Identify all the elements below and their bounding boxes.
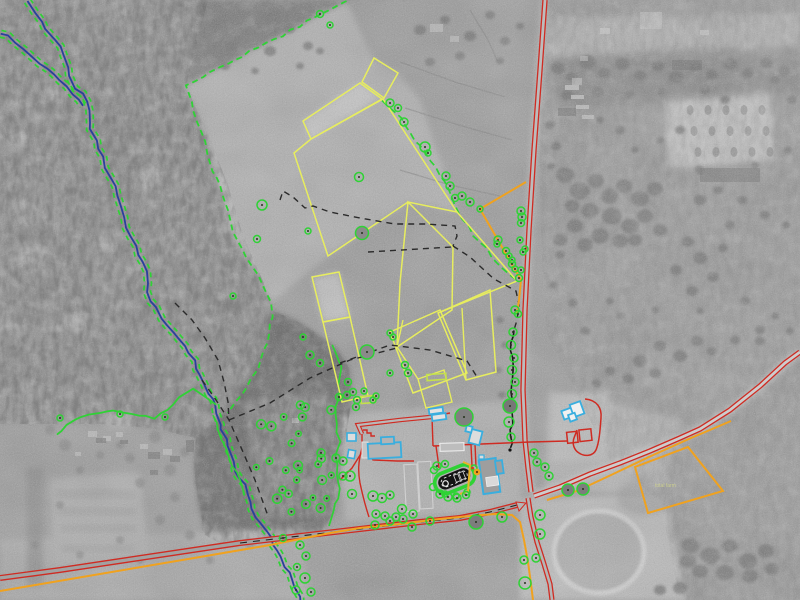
svg-text:total farm: total farm [655,483,676,489]
